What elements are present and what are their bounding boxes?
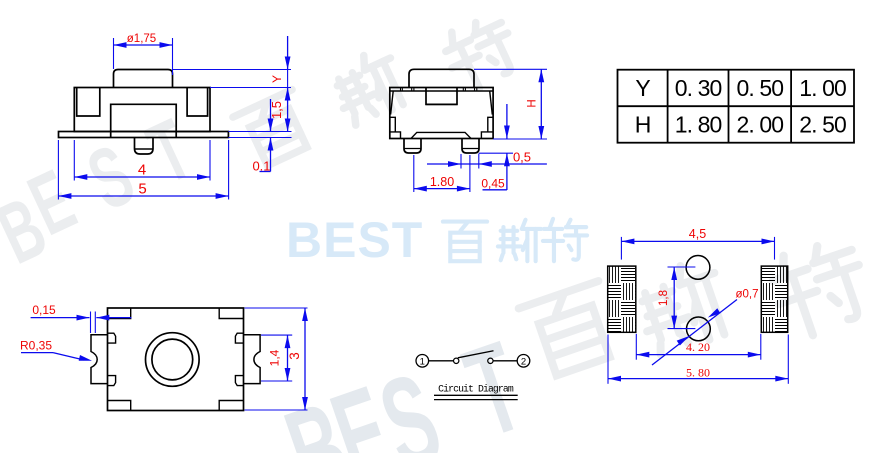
svg-text:4: 4: [138, 162, 146, 179]
svg-text:1,8: 1,8: [658, 290, 670, 306]
svg-text:BEST: BEST: [286, 212, 423, 268]
svg-text:0,5: 0,5: [513, 150, 531, 165]
svg-text:2: 2: [521, 357, 526, 368]
svg-text:0,15: 0,15: [32, 303, 56, 317]
svg-text:1.80: 1.80: [430, 175, 454, 189]
svg-text:ø0,7: ø0,7: [735, 289, 758, 301]
svg-text:Circuit Diagram: Circuit Diagram: [438, 383, 514, 394]
svg-text:ø1,75: ø1,75: [127, 33, 156, 45]
svg-text:0,45: 0,45: [481, 177, 505, 191]
svg-text:2. 50: 2. 50: [799, 112, 846, 138]
svg-text:1. 00: 1. 00: [799, 75, 846, 101]
svg-text:Y: Y: [635, 75, 650, 101]
svg-text:1: 1: [420, 357, 425, 368]
svg-text:1,4: 1,4: [268, 349, 282, 366]
svg-text:5. 80: 5. 80: [686, 366, 710, 380]
svg-text:1. 80: 1. 80: [675, 112, 722, 138]
svg-text:1,5: 1,5: [269, 101, 284, 119]
svg-text:4,5: 4,5: [689, 227, 706, 241]
svg-text:0. 30: 0. 30: [675, 75, 722, 101]
svg-text:4. 20: 4. 20: [686, 340, 710, 354]
svg-text:R0,35: R0,35: [20, 339, 52, 353]
svg-text:0. 50: 0. 50: [736, 75, 783, 101]
svg-text:Y: Y: [270, 75, 284, 83]
svg-text:0.1: 0.1: [252, 159, 270, 174]
svg-text:3: 3: [287, 352, 302, 360]
svg-text:H: H: [635, 112, 651, 138]
svg-text:2. 00: 2. 00: [736, 112, 783, 138]
svg-text:H: H: [527, 99, 539, 107]
svg-text:5: 5: [138, 181, 146, 198]
